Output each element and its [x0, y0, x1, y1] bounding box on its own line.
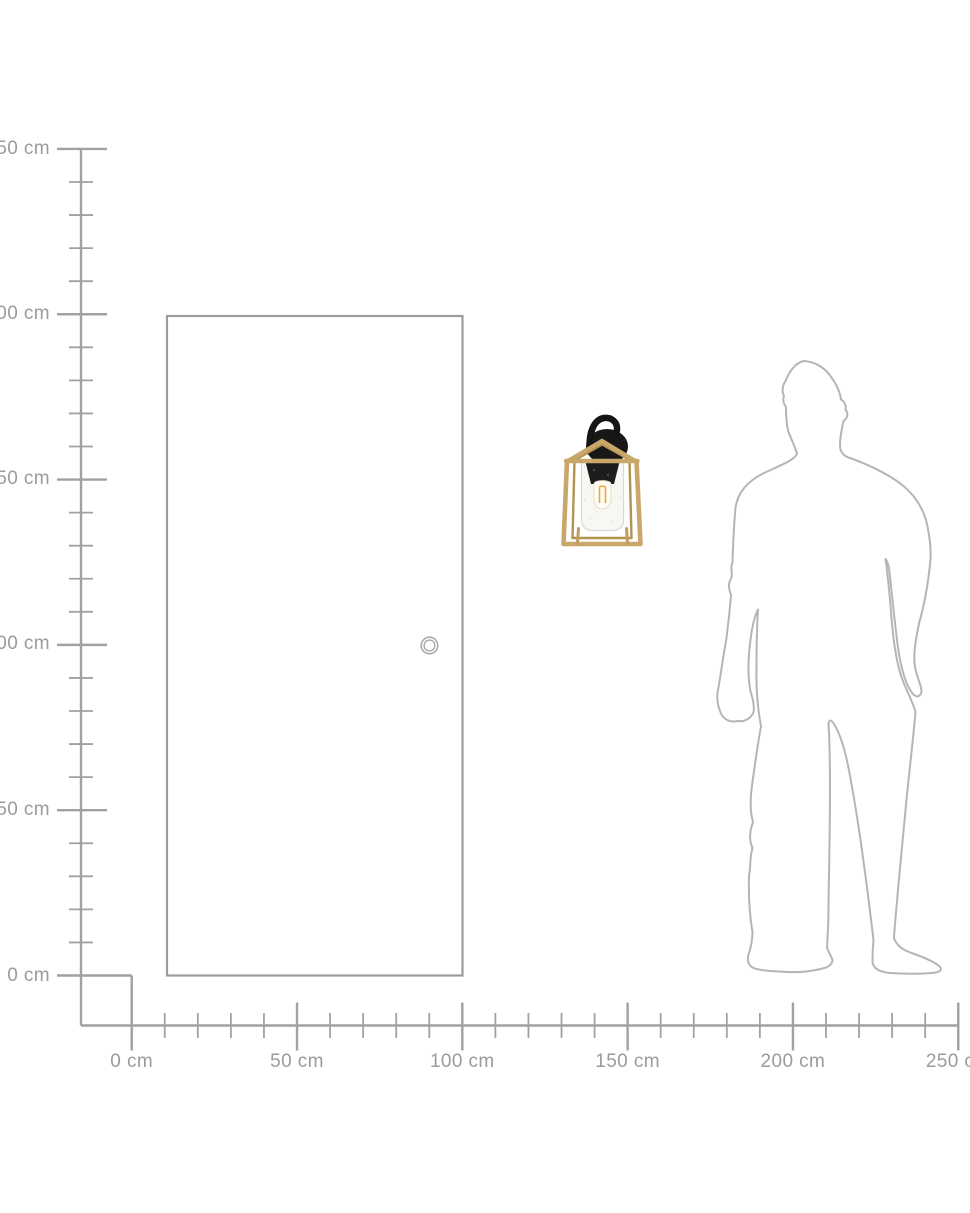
socket-speckle — [607, 474, 609, 476]
person-silhouette — [717, 361, 941, 974]
cage-leg-right — [637, 461, 641, 544]
x-axis-label-150: 150 cm — [563, 1050, 693, 1074]
diagram-graphics — [0, 0, 970, 1213]
horizontal-ruler — [81, 976, 959, 1051]
size-comparison-diagram: 250 cm 200 cm 150 cm 100 cm 50 cm 0 cm 0… — [0, 0, 970, 1213]
door-outline — [167, 316, 463, 976]
y-axis-label-200: 200 cm — [0, 302, 50, 326]
vertical-ruler — [57, 149, 132, 1026]
cage-bottom-post-right — [627, 529, 628, 544]
socket-speckle — [593, 469, 595, 471]
cage-back-leg-left — [573, 461, 575, 538]
cage-bottom-post-left — [578, 529, 579, 544]
x-axis-label-50: 50 cm — [232, 1050, 362, 1074]
wall-lamp-product — [564, 418, 641, 544]
y-axis-label-150: 150 cm — [0, 467, 50, 491]
lamp-bulb — [594, 481, 611, 509]
y-axis-label-0: 0 cm — [0, 964, 50, 988]
door-panel — [167, 316, 463, 976]
y-axis-label-250: 250 cm — [0, 137, 50, 161]
x-axis-label-100: 100 cm — [397, 1050, 527, 1074]
y-axis-label-100: 100 cm — [0, 632, 50, 656]
y-axis-label-50: 50 cm — [0, 798, 50, 822]
cage-leg-left — [564, 461, 568, 544]
x-axis-label-250: 250 cm — [893, 1050, 970, 1074]
x-axis-label-200: 200 cm — [728, 1050, 858, 1074]
x-axis-label-0: 0 cm — [67, 1050, 197, 1074]
cage-back-leg-right — [630, 461, 632, 538]
